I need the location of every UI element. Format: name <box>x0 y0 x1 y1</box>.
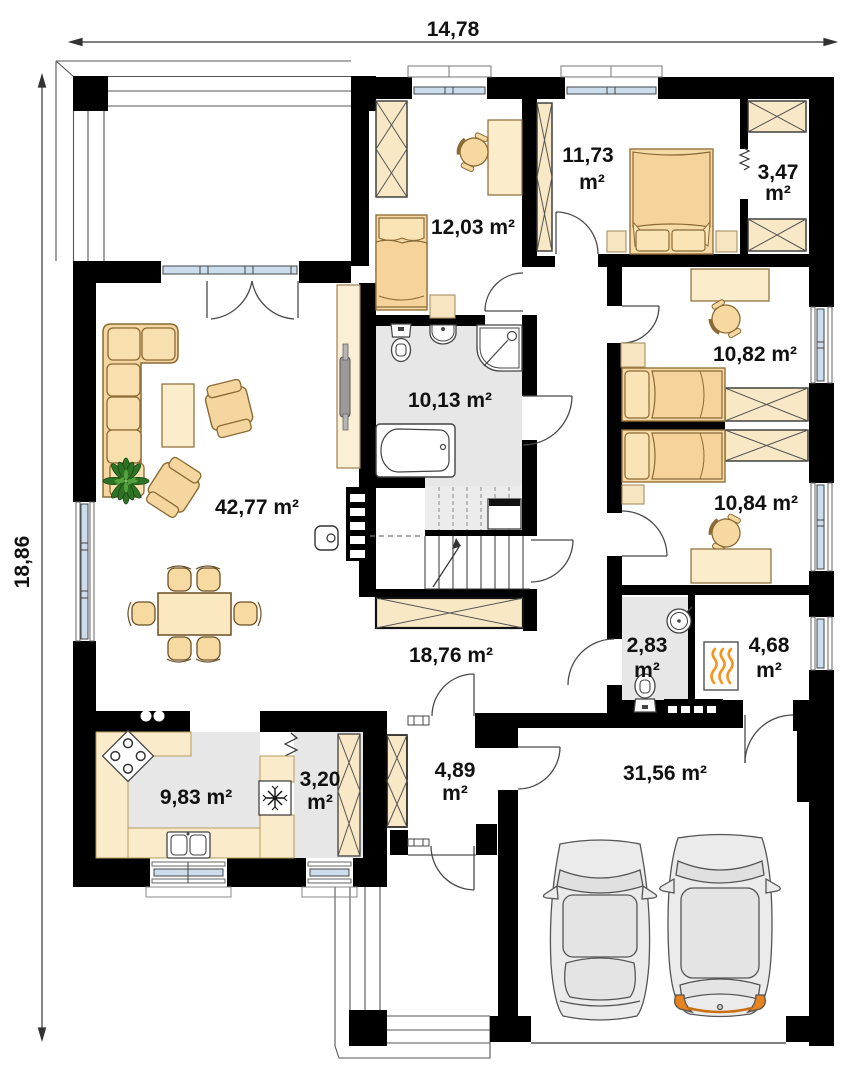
svg-text:9,83 m²: 9,83 m² <box>160 786 232 809</box>
svg-text:10,82 m²: 10,82 m² <box>713 343 797 366</box>
svg-text:4,89: 4,89 <box>435 759 476 782</box>
svg-text:m²: m² <box>756 659 782 682</box>
svg-text:11,73: 11,73 <box>562 144 613 167</box>
svg-text:10,13 m²: 10,13 m² <box>408 389 492 412</box>
svg-text:3,20: 3,20 <box>300 768 341 791</box>
svg-text:2,83: 2,83 <box>627 634 668 657</box>
svg-text:31,56 m²: 31,56 m² <box>623 762 707 785</box>
svg-text:4,68: 4,68 <box>749 634 790 657</box>
svg-text:12,03 m²: 12,03 m² <box>431 216 515 239</box>
svg-text:18,76 m²: 18,76 m² <box>409 644 493 667</box>
svg-text:3,47: 3,47 <box>758 161 799 184</box>
svg-text:m²: m² <box>307 791 333 814</box>
svg-text:m²: m² <box>765 182 791 205</box>
svg-text:m²: m² <box>634 659 660 682</box>
svg-text:42,77 m²: 42,77 m² <box>215 496 299 519</box>
svg-text:10,84 m²: 10,84 m² <box>714 492 798 515</box>
svg-text:14,78: 14,78 <box>427 18 480 41</box>
svg-text:m²: m² <box>579 171 605 194</box>
svg-text:18,86: 18,86 <box>11 536 34 589</box>
svg-text:m²: m² <box>442 782 468 805</box>
